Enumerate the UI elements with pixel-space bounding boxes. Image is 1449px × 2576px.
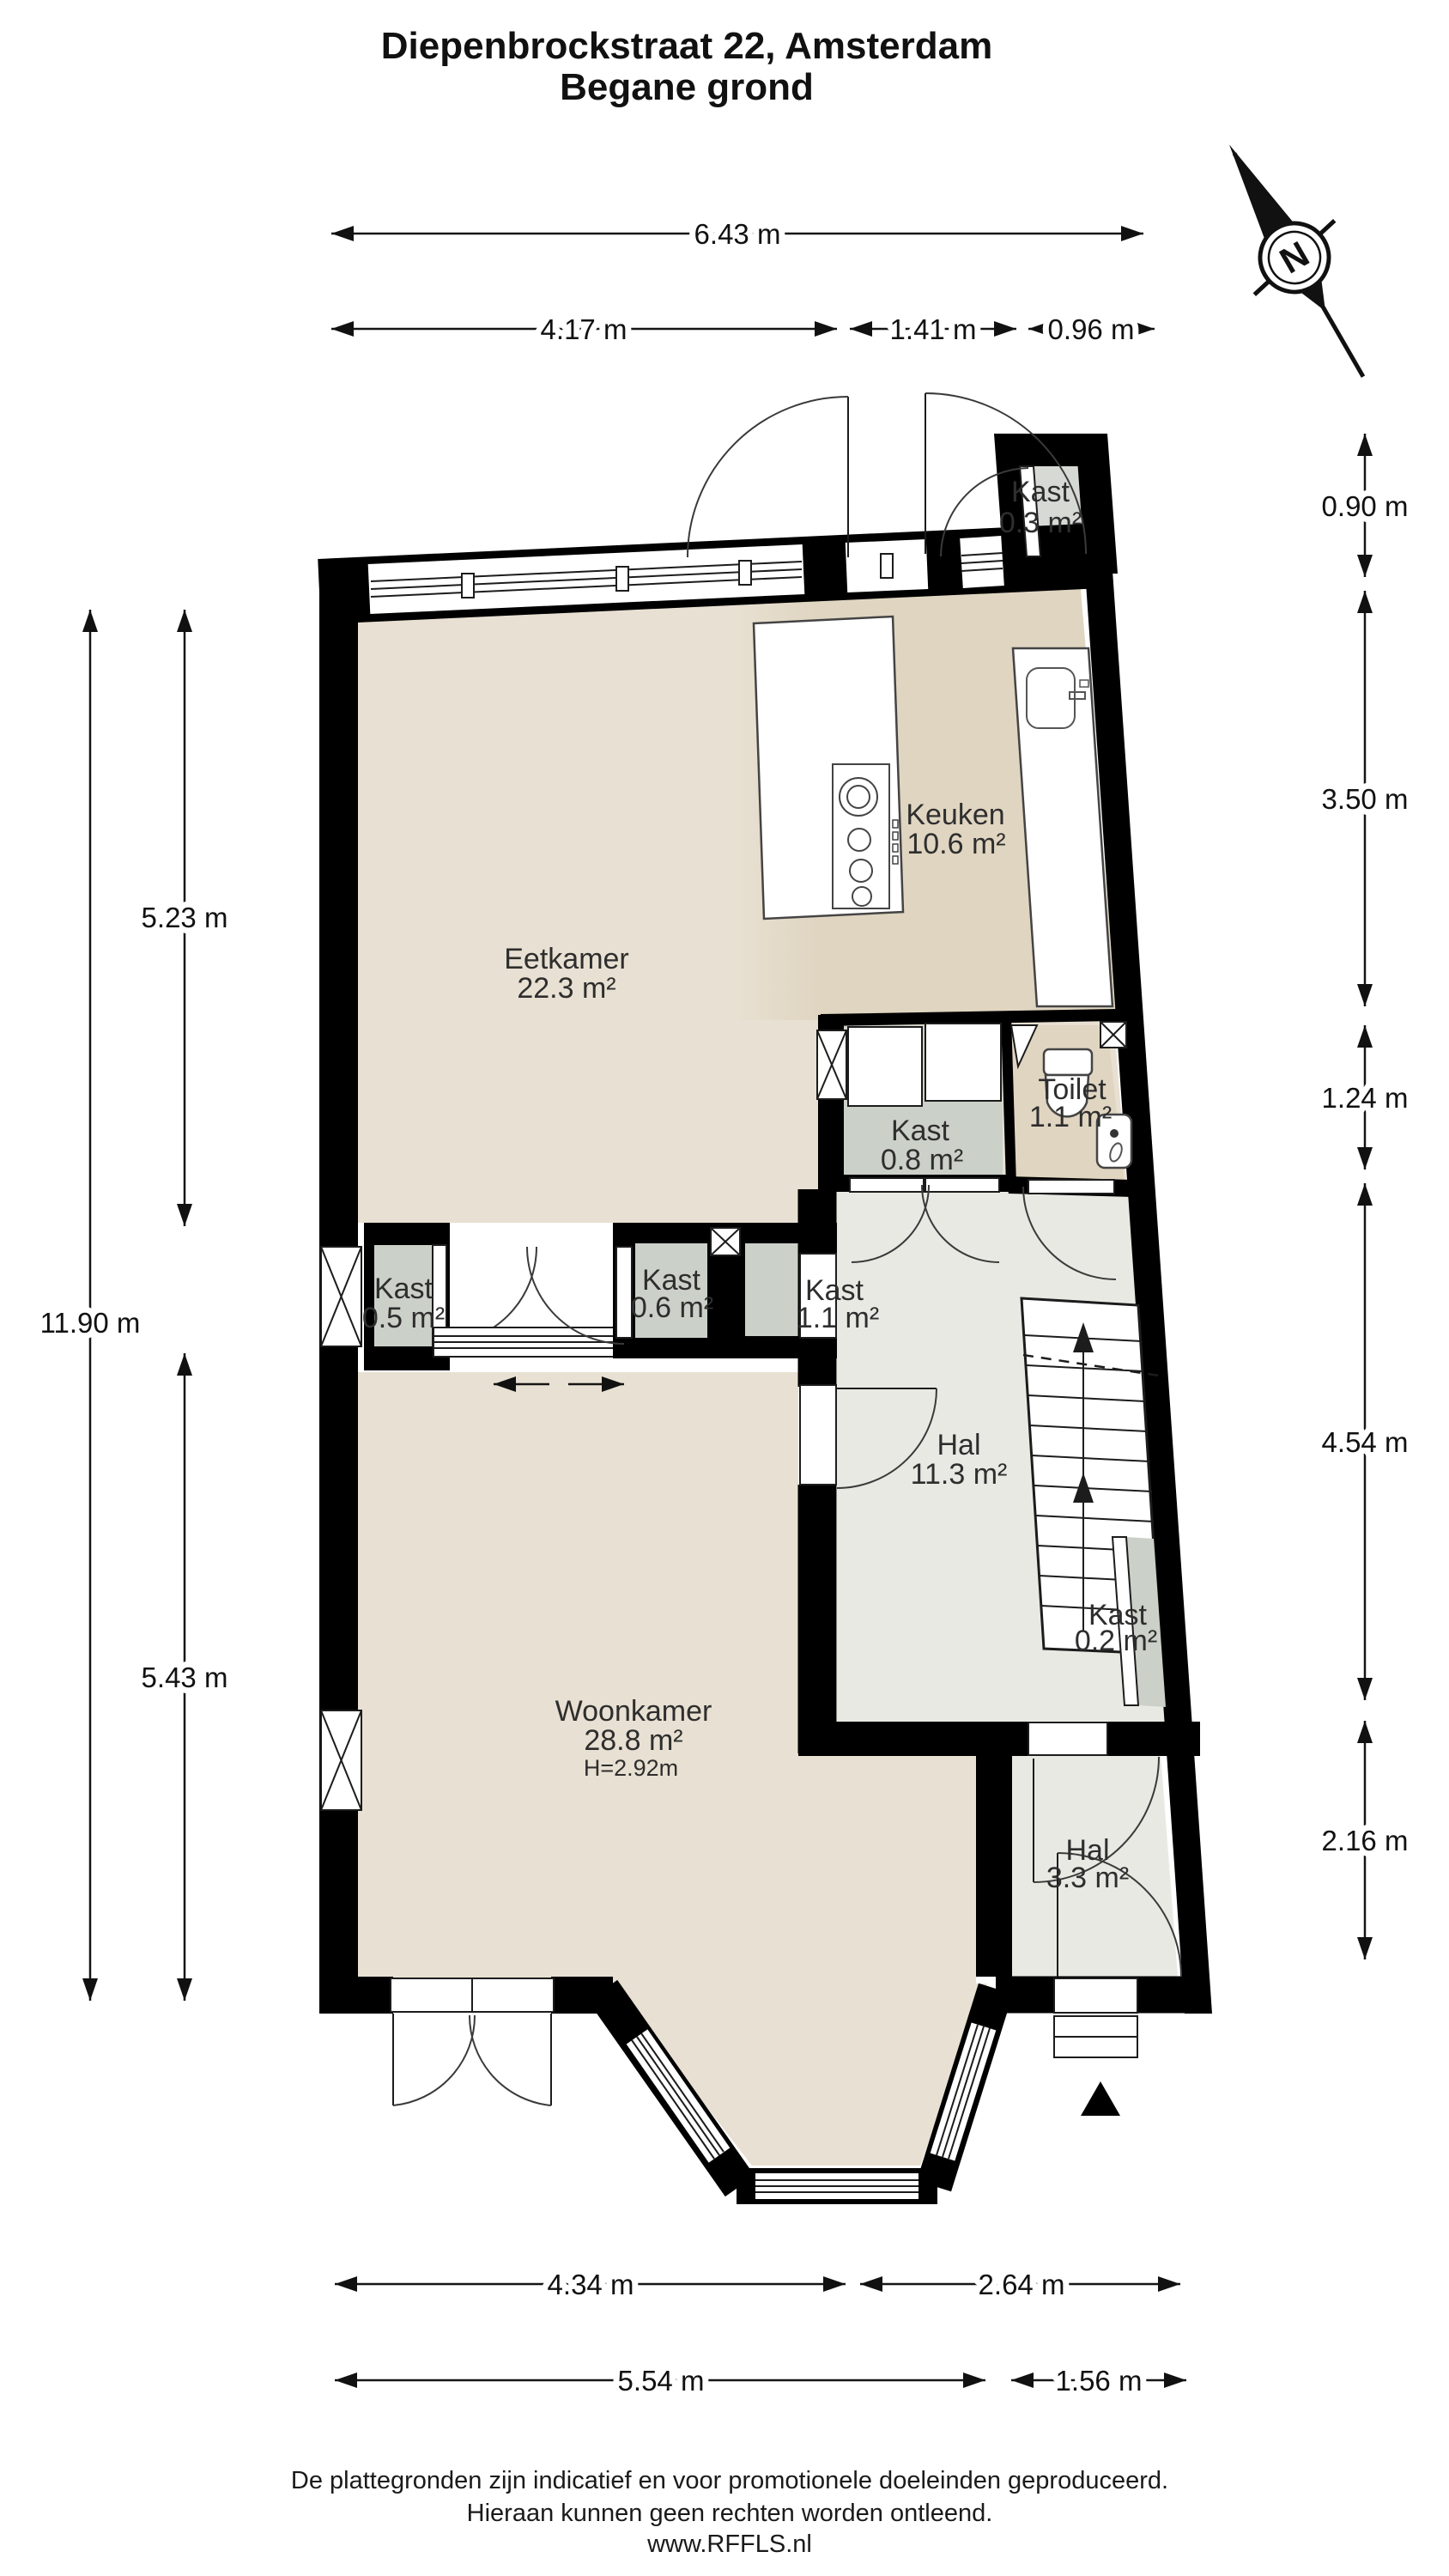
dim-right-3: 1.24 m xyxy=(1322,1082,1409,1114)
kitchen-sink xyxy=(1027,668,1075,728)
room-label-kast03-area: 0.3 m² xyxy=(999,507,1082,539)
footer-line-1: De plattegronden zijn indicatief en voor… xyxy=(291,2467,1168,2494)
door-swing-arc xyxy=(470,2015,551,2105)
dim-bottom-3: 5.54 m xyxy=(618,2365,705,2397)
woonkamer-hal-door xyxy=(800,1385,836,1485)
room-label-eetkamer-area: 22.3 m² xyxy=(517,972,615,1005)
room-label-kast06-area: 0.6 m² xyxy=(631,1291,713,1324)
room-label-kast08-area: 0.8 m² xyxy=(881,1144,963,1176)
dim-right-1: 0.90 m xyxy=(1322,490,1409,522)
floor-plan-svg: Diepenbrockstraat 22, Amsterdam Begane g… xyxy=(0,0,1449,2576)
kast08-door xyxy=(850,1178,924,1192)
dim-right-5: 2.16 m xyxy=(1322,1825,1409,1856)
room-label-hal-name: Hal xyxy=(937,1429,980,1461)
window-mullion xyxy=(739,561,751,585)
room-label-keuken-name: Keuken xyxy=(906,799,1004,831)
toilet-hall-door xyxy=(1028,1180,1114,1194)
room-label-kast03-name: Kast xyxy=(1011,476,1070,508)
dim-top-right: 0.96 m xyxy=(1048,313,1135,345)
dim-right-2: 3.50 m xyxy=(1322,783,1409,815)
flue-icon xyxy=(817,1030,846,1099)
dim-bottom-1: 4.34 m xyxy=(548,2269,634,2300)
room-label-hal-entree-area: 3.3 m² xyxy=(1046,1862,1129,1894)
window-mullion xyxy=(462,574,474,598)
hal-entree-door xyxy=(1028,1722,1107,1755)
dim-left-upper: 5.23 m xyxy=(142,902,228,933)
flue-icon xyxy=(711,1228,740,1255)
entrance-marker xyxy=(1081,2081,1120,2116)
closet-door-panel xyxy=(848,1027,922,1106)
dim-left-lower: 5.43 m xyxy=(142,1662,228,1693)
bottom-wall-left xyxy=(319,1977,393,2014)
room-label-woonkamer-area: 28.8 m² xyxy=(584,1724,682,1757)
dim-top-mid: 1.41 m xyxy=(890,313,977,345)
interior-wall xyxy=(1006,1015,1011,1185)
dim-top-total: 6.43 m xyxy=(694,218,781,250)
door-swing-arc xyxy=(393,2015,475,2105)
toilet-cistern-icon xyxy=(1044,1049,1092,1075)
dim-top-left: 4.17 m xyxy=(541,313,627,345)
room-label-kast08-name: Kast xyxy=(891,1115,950,1147)
footer-disclaimer: De plattegronden zijn indicatief en voor… xyxy=(291,2467,1168,2558)
kast06-door xyxy=(616,1247,632,1338)
room-label-kast02-area: 0.2 m² xyxy=(1075,1625,1157,1657)
top-windows xyxy=(369,393,1086,598)
dim-left-total: 11.90 m xyxy=(40,1307,141,1339)
dim-bottom-2: 2.64 m xyxy=(979,2269,1065,2300)
room-label-keuken-area: 10.6 m² xyxy=(906,828,1005,860)
title-floor: Begane grond xyxy=(560,66,814,108)
footer-line-2: Hieraan kunnen geen rechten worden ontle… xyxy=(467,2500,993,2527)
dim-bottom-4: 1.56 m xyxy=(1056,2365,1143,2397)
room-label-eetkamer-name: Eetkamer xyxy=(504,943,629,975)
room-label-toilet-area: 1.1 m² xyxy=(1029,1101,1112,1133)
page-title: Diepenbrockstraat 22, Amsterdam Begane g… xyxy=(381,25,992,108)
flue-icon xyxy=(321,1247,361,1346)
room-label-kast05-name: Kast xyxy=(374,1273,433,1305)
room-label-kast05-area: 0.5 m² xyxy=(362,1302,445,1334)
window-mullion xyxy=(616,567,628,591)
room-label-woonkamer-name: Woonkamer xyxy=(555,1695,712,1728)
dim-right-4: 4.54 m xyxy=(1322,1426,1409,1458)
interior-wall xyxy=(821,1015,1118,1020)
front-door-opening xyxy=(1054,1978,1137,2013)
closet-door-panel xyxy=(925,1024,1001,1101)
door-jamb xyxy=(881,554,893,578)
flue-icon xyxy=(321,1710,361,1810)
room-label-kast11-area: 1.1 m² xyxy=(797,1302,879,1334)
flue-icon xyxy=(1100,1022,1126,1048)
title-address: Diepenbrockstraat 22, Amsterdam xyxy=(381,25,992,67)
room-label-woonkamer-height: H=2.92m xyxy=(584,1755,678,1781)
room-label-hal-area: 11.3 m² xyxy=(911,1458,1008,1491)
compass-icon: N xyxy=(1183,118,1409,403)
kast08-door xyxy=(925,1178,999,1192)
footer-line-3: www.RFFLS.nl xyxy=(646,2530,812,2558)
door-swing-arc xyxy=(688,397,848,557)
